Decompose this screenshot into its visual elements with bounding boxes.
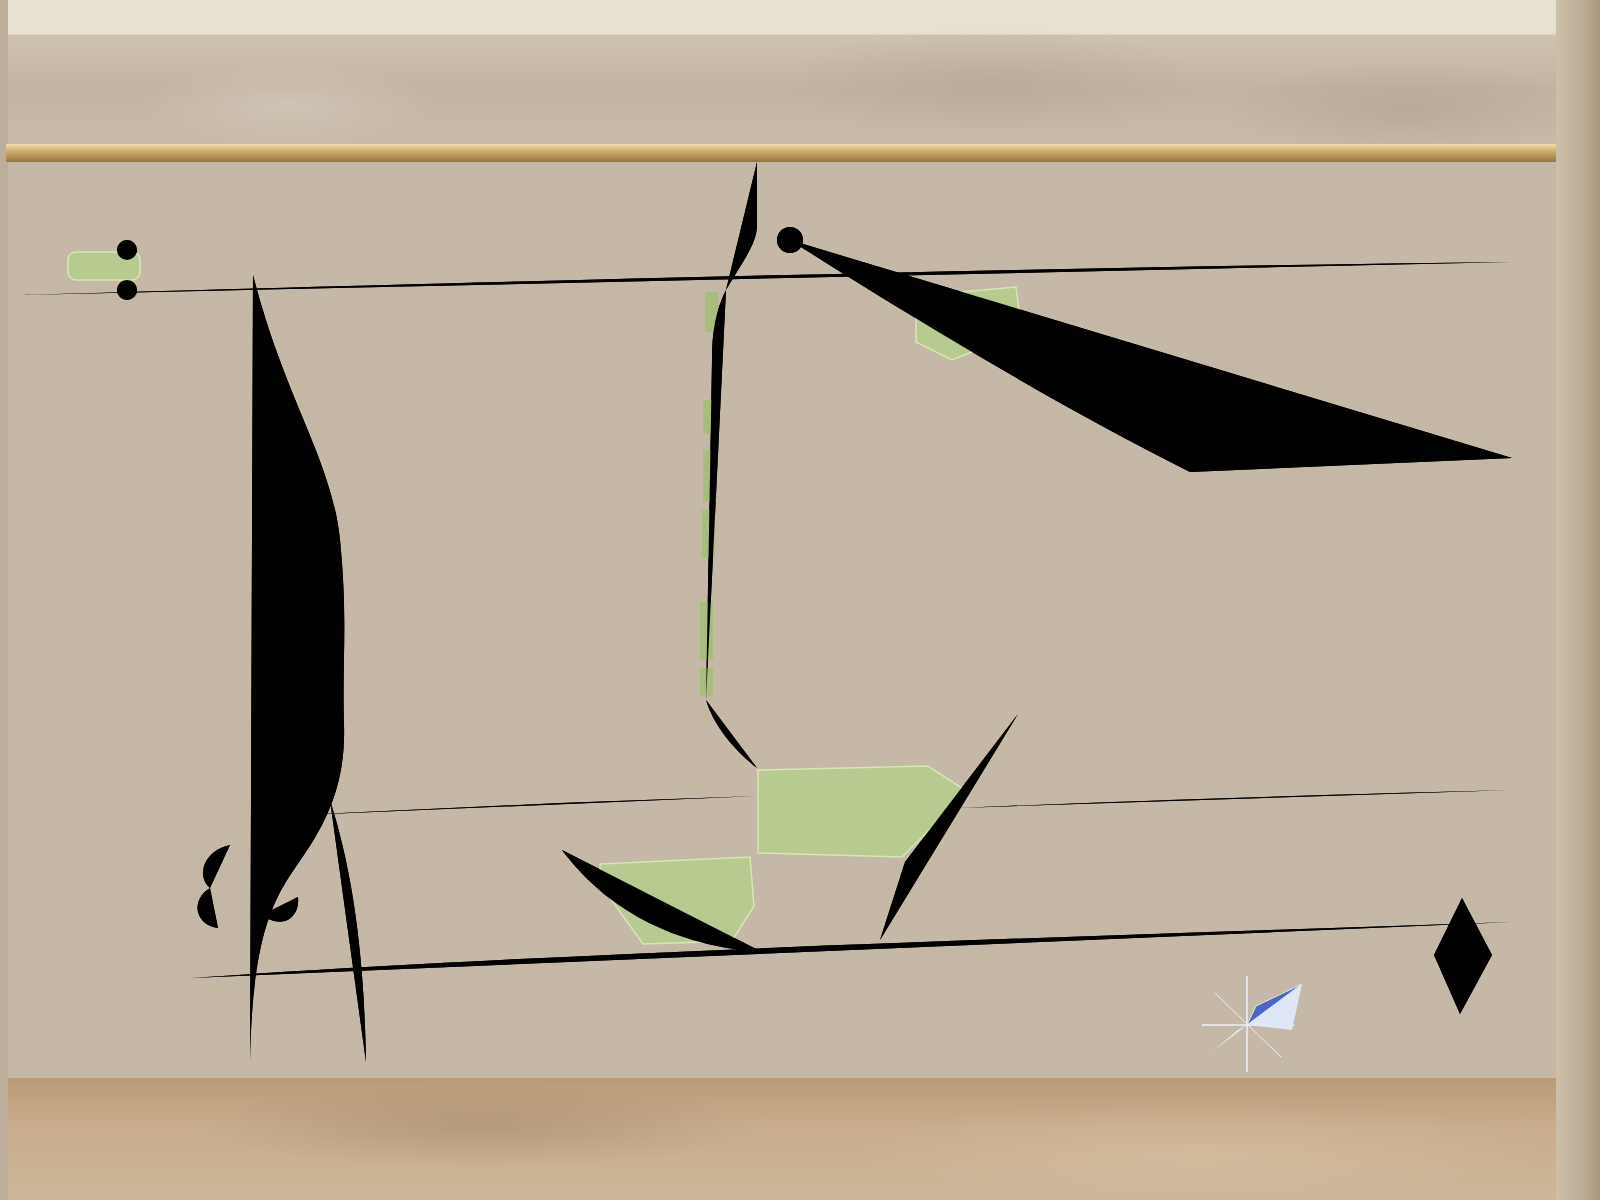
marble-wall-top — [0, 0, 1600, 148]
park-polygons — [68, 252, 1022, 944]
city-map-graphic — [0, 0, 1600, 1200]
compass-rose — [1202, 976, 1302, 1072]
marble-wall-bottom — [0, 1078, 1600, 1200]
road-network — [20, 162, 1512, 1062]
road-network — [20, 162, 1512, 1062]
photo-of-map-board: ROSE MANSION 易道郡·玫瑰公馆 ROSE MANSION 易道郡·玫… — [0, 0, 1600, 1200]
marble-wall-left — [0, 0, 8, 1200]
marble-wall-right — [1556, 0, 1600, 1200]
